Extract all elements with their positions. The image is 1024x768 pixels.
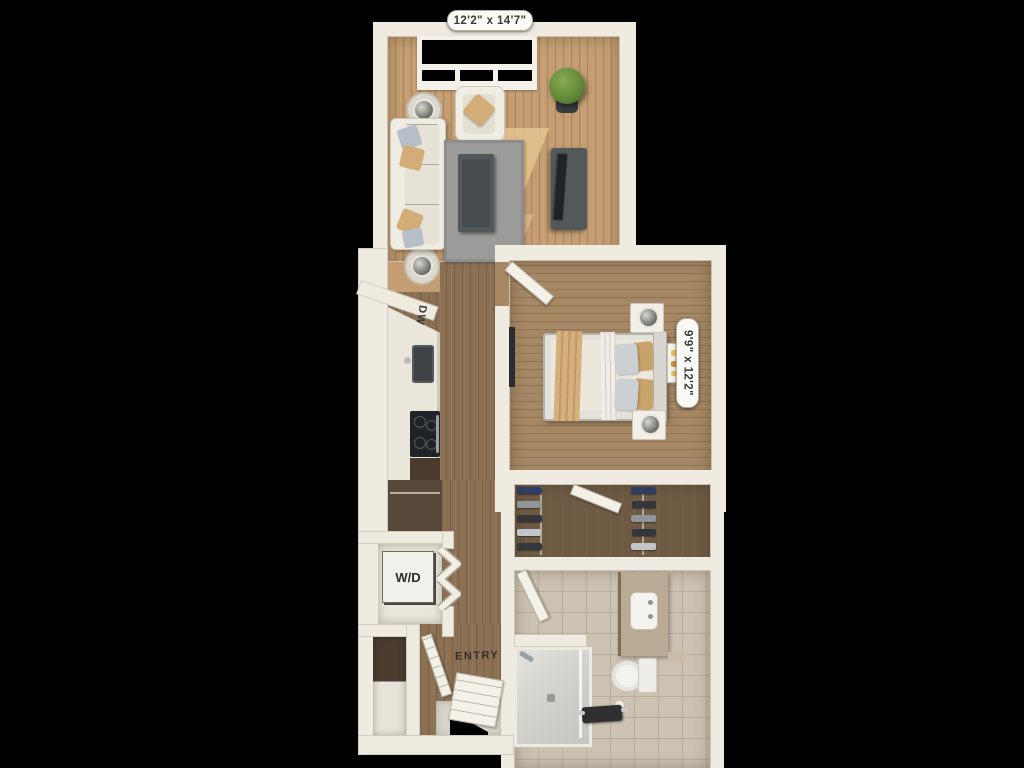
sofa-pillow-blue <box>402 227 425 248</box>
oven-handle <box>436 415 439 453</box>
bedroom-dimensions-label: 9'9" x 12'2" <box>676 318 699 408</box>
entry-label: ENTRY <box>455 649 500 663</box>
floorplan-canvas: DW <box>0 0 1024 768</box>
sofa <box>390 118 446 250</box>
window-pane-lower <box>422 70 532 81</box>
stove <box>410 411 440 457</box>
lower-cabinet <box>410 458 440 480</box>
shower <box>514 647 592 747</box>
wall-stub <box>442 606 454 637</box>
bath-mat <box>581 705 622 724</box>
hanging-clothes <box>632 501 656 508</box>
bifold-door-icon <box>437 548 461 610</box>
burner-icon <box>414 416 426 428</box>
living-room-dimensions-label: 12'2" x 14'7" <box>447 10 533 31</box>
bed <box>543 333 667 421</box>
window-pane-upper <box>422 40 532 64</box>
living-window <box>417 36 537 90</box>
washer-dryer: W/D <box>382 551 434 603</box>
hanging-clothes <box>631 487 656 494</box>
shower-glass-edge <box>579 650 582 738</box>
vanity <box>618 572 668 656</box>
south-wall <box>358 735 514 755</box>
faucet-icon <box>404 357 411 364</box>
pantry-closet-rod <box>390 492 440 494</box>
plant-icon <box>549 68 585 104</box>
bedside-lamp <box>638 307 659 328</box>
laundry-closet-top-wall <box>358 531 454 544</box>
wall-stub <box>442 531 454 549</box>
window-mullion <box>455 70 460 81</box>
shower-head-icon <box>519 650 534 662</box>
armchair <box>455 86 505 142</box>
kitchen-sink <box>412 345 434 383</box>
coat-closet-floor <box>373 637 406 736</box>
sink-basin <box>630 592 658 630</box>
hanging-clothes <box>517 529 541 536</box>
hanging-clothes <box>517 501 541 508</box>
bedside-lamp <box>640 414 661 435</box>
bed-pillow-gray <box>614 343 639 375</box>
hanging-clothes <box>632 529 656 536</box>
hanging-clothes <box>517 515 542 522</box>
coffee-table <box>458 154 494 232</box>
bed-pillow-gray <box>614 378 639 411</box>
washer-dryer-label: W/D <box>395 570 420 585</box>
coffee-table-top <box>462 159 490 227</box>
shower-half-wall <box>514 634 587 647</box>
bath-mat-handle <box>621 708 628 712</box>
window-mullion <box>493 70 498 81</box>
coat-closet-right-wall <box>406 624 420 738</box>
faucet-icon <box>648 600 653 605</box>
bathroom-shelf <box>668 652 684 662</box>
hanging-clothes <box>517 543 542 550</box>
hanging-clothes <box>517 487 542 494</box>
burner-icon <box>414 437 426 449</box>
shower-drain-icon <box>547 694 555 702</box>
toilet-tank <box>638 658 657 693</box>
hanging-clothes <box>631 543 656 550</box>
faucet-icon <box>648 614 653 619</box>
pantry-floor <box>388 480 442 531</box>
bedroom-tv-icon <box>509 327 515 387</box>
table-lamp <box>411 255 433 277</box>
front-door <box>448 672 504 728</box>
bath-mat-handle <box>578 711 585 715</box>
bed-blanket <box>553 331 582 422</box>
hanging-clothes <box>631 515 656 522</box>
hallway-floor <box>438 244 501 484</box>
